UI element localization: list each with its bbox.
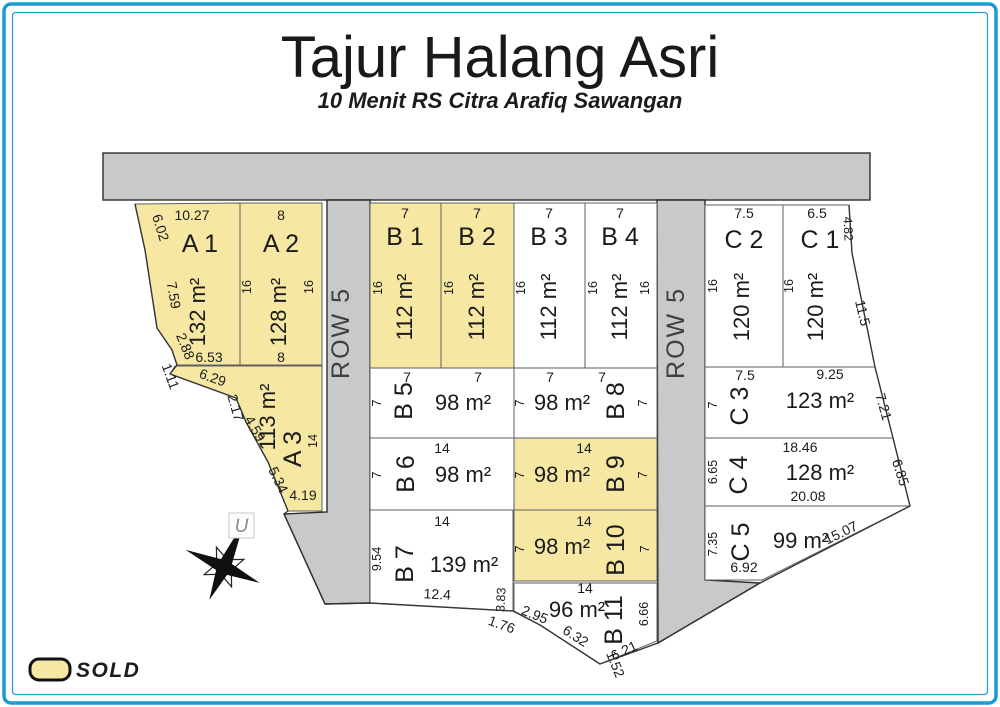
plot-B8-dim-left: 7 xyxy=(513,399,527,406)
plot-C1-name: C 1 xyxy=(801,226,840,254)
plot-B7-dim-outer: 1.76 xyxy=(486,612,517,636)
page-subtitle: 10 Menit RS Citra Arafiq Sawangan xyxy=(318,88,683,113)
plot-B3-dim-top: 7 xyxy=(545,205,553,221)
plot-C1-dim-right-upper: 4.82 xyxy=(840,216,855,241)
page-title: Tajur Halang Asri xyxy=(281,25,719,90)
plot-B1-dim-top: 7 xyxy=(401,205,409,221)
plot-B6-area: 98 m² xyxy=(435,462,491,487)
plot-B9-dim-right: 7 xyxy=(636,471,650,478)
plot-B6-dim-left: 7 xyxy=(370,471,384,478)
plot-A3-dim-bottom: 4.19 xyxy=(289,487,316,503)
plot-B2-dim-top: 7 xyxy=(473,205,481,221)
plot-B4-dim-right: 16 xyxy=(638,281,652,295)
plot-A1-name: A 1 xyxy=(182,230,218,258)
plot-B11-dim-top: 14 xyxy=(577,580,593,596)
plot-B10-dim-right: 7 xyxy=(638,545,652,552)
plot-B8-dim-top-1: 7 xyxy=(546,369,554,385)
plot-B5-area: 98 m² xyxy=(435,390,491,415)
plot-B3-area: 112 m² xyxy=(536,274,561,341)
plot-B2-name: B 2 xyxy=(458,223,496,251)
plot-B8-dim-right: 7 xyxy=(636,399,650,406)
plot-B7-area: 139 m² xyxy=(430,552,498,577)
plot-C3-name: C 3 xyxy=(726,387,754,426)
compass-north-label: U xyxy=(235,516,249,537)
plot-B9-dim-left: 7 xyxy=(513,471,527,478)
plot-B3-dim-left: 16 xyxy=(514,281,528,295)
plot-C4-dim-left: 6.65 xyxy=(706,460,720,484)
plot-A2-dim-bottom: 8 xyxy=(277,349,285,365)
plot-C3-dim-top-2: 9.25 xyxy=(816,366,843,382)
plot-B9-name: B 9 xyxy=(602,455,630,493)
plot-B5-dim-top-2: 7 xyxy=(474,369,482,385)
plot-B7-name: B 7 xyxy=(391,545,419,583)
plot-C1-dim-top: 6.5 xyxy=(807,205,827,221)
plot-B4-name: B 4 xyxy=(601,223,639,251)
plot-C3-area: 123 m² xyxy=(786,388,854,413)
road-top xyxy=(103,153,870,200)
site-plan-poster: Tajur Halang Asri 10 Menit RS Citra Araf… xyxy=(0,0,1000,707)
plot-C2-name: C 2 xyxy=(725,226,764,254)
plot-C5-area: 99 m² xyxy=(773,528,829,553)
plot-B5-dim-top-1: 7 xyxy=(403,369,411,385)
plot-C4-area: 128 m² xyxy=(786,460,854,485)
plot-B4-dim-left: 16 xyxy=(586,281,600,295)
compass-rose xyxy=(171,504,280,616)
plot-B8-dim-top-2: 7 xyxy=(598,369,606,385)
plot-C1-dim-left: 16 xyxy=(782,279,796,293)
plot-B7-dim-top: 14 xyxy=(434,513,450,529)
plot-C3-dim-left: 7 xyxy=(706,401,720,408)
plot-B5-name: B 5 xyxy=(390,382,418,420)
plot-B11-dim-right: 6.66 xyxy=(637,602,651,626)
plot-B7-dim-right-lower: 3.83 xyxy=(493,587,508,612)
plot-A2-dim-top: 8 xyxy=(277,207,285,223)
plot-B6-dim-top: 14 xyxy=(434,440,450,456)
plot-C2-dim-left: 16 xyxy=(706,279,720,293)
legend-sold-swatch xyxy=(30,659,70,680)
plot-A2-area: 128 m² xyxy=(266,278,291,346)
plot-B8-area: 98 m² xyxy=(534,390,590,415)
plot-B1-name: B 1 xyxy=(386,223,424,251)
plot-B10-area: 98 m² xyxy=(534,534,590,559)
plot-B10-dim-top: 14 xyxy=(576,513,592,529)
plot-C5-dim-left: 7.35 xyxy=(706,532,720,556)
plot-B9-dim-top: 14 xyxy=(576,440,592,456)
plot-C4-name: C 4 xyxy=(725,455,753,494)
row5-left-label: ROW 5 xyxy=(327,287,355,379)
plot-B10-name: B 10 xyxy=(602,524,630,575)
plot-C2-area: 120 m² xyxy=(729,273,754,341)
plot-C1-area: 120 m² xyxy=(803,273,828,341)
plot-B2-area: 112 m² xyxy=(464,274,489,341)
plot-B6-name: B 6 xyxy=(392,455,420,493)
plot-B8-name: B 8 xyxy=(602,382,630,420)
plot-A2-dim-left: 16 xyxy=(240,280,254,294)
plot-C2-dim-top: 7.5 xyxy=(734,205,754,221)
plot-B7-dim-left: 9.54 xyxy=(370,547,384,571)
plot-B9-area: 98 m² xyxy=(534,462,590,487)
plot-B10-dim-left: 7 xyxy=(513,545,527,552)
plot-B4-dim-top: 7 xyxy=(616,205,624,221)
plot-A3-dim-right: 14 xyxy=(306,434,320,448)
plot-B5-dim-left: 7 xyxy=(370,399,384,406)
plot-C3-dim-top-1: 7.5 xyxy=(735,367,755,383)
plot-A1-dim-bottom: 6.53 xyxy=(195,349,222,365)
plot-B1-dim-left: 16 xyxy=(371,281,385,295)
plot-B3-name: B 3 xyxy=(530,223,568,251)
plot-A3-name: A 3 xyxy=(279,431,307,467)
plot-B1-area: 112 m² xyxy=(392,274,417,341)
plot-C4-dim-top: 18.46 xyxy=(782,439,817,455)
plot-A2-name: A 2 xyxy=(263,230,299,258)
row5-right-label: ROW 5 xyxy=(662,287,690,379)
plot-B11-area: 96 m² xyxy=(549,597,605,622)
plot-B4-area: 112 m² xyxy=(607,274,632,341)
plot-C5-name: C 5 xyxy=(727,523,755,562)
legend-sold-label: SOLD xyxy=(76,659,140,682)
site-plan-svg: Tajur Halang Asri 10 Menit RS Citra Araf… xyxy=(0,0,1000,707)
plot-A2-dim-right: 16 xyxy=(302,280,316,294)
plot-C5-dim-bottom: 6.92 xyxy=(730,559,757,575)
plot-B7-dim-bottom: 12.4 xyxy=(423,585,451,602)
plot-B2-dim-left: 16 xyxy=(442,281,456,295)
plot-A1-dim-top: 10.27 xyxy=(174,207,209,223)
compass-main-star xyxy=(171,504,280,616)
plot-C4-dim-bottom: 20.08 xyxy=(790,488,825,504)
